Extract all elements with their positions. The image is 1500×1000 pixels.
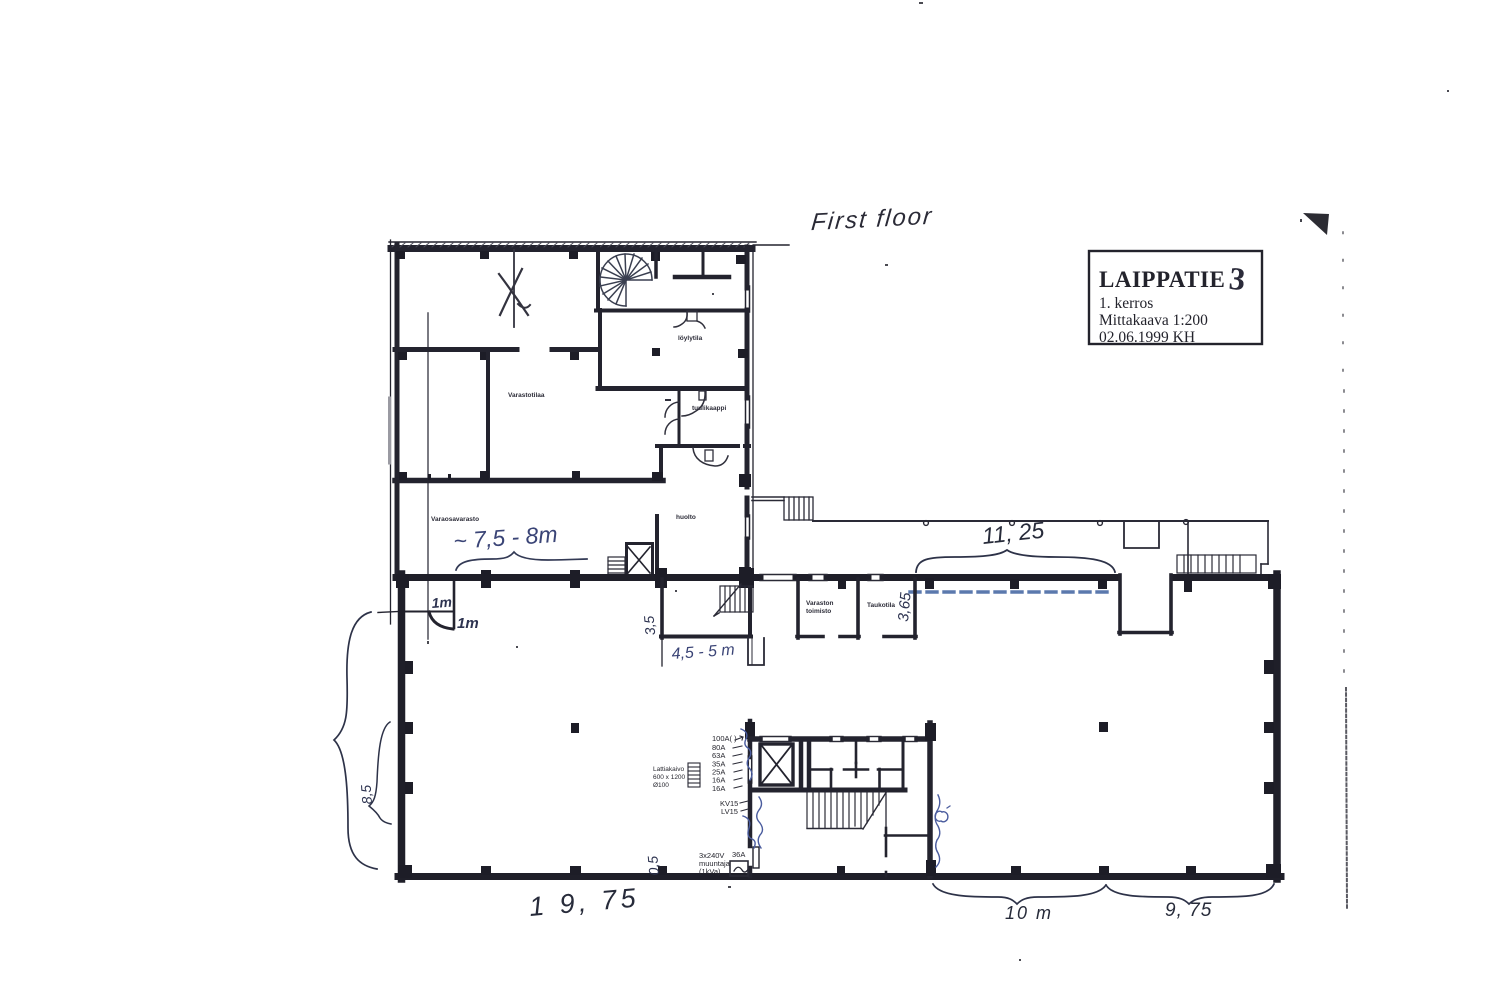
svg-text:LAIPPATIE: LAIPPATIE: [1099, 267, 1225, 292]
svg-text:1. kerros: 1. kerros: [1099, 295, 1153, 312]
svg-text:100A( ): 100A( ): [712, 734, 737, 743]
svg-text:toimisto: toimisto: [806, 608, 831, 615]
svg-text:LV15: LV15: [721, 807, 738, 816]
svg-text:4,5 - 5 m: 4,5 - 5 m: [671, 642, 735, 663]
svg-text:36A: 36A: [732, 850, 745, 859]
svg-text:1m: 1m: [457, 615, 479, 632]
svg-text:1m: 1m: [431, 594, 452, 611]
svg-text:9, 75: 9, 75: [1165, 900, 1212, 921]
svg-text:0,5: 0,5: [644, 855, 662, 876]
svg-text:3,65: 3,65: [895, 591, 915, 622]
svg-text:löylytila: löylytila: [678, 335, 703, 342]
svg-text:3,5: 3,5: [641, 615, 659, 636]
svg-text:First floor: First floor: [810, 203, 934, 236]
svg-text:Mittakaava 1:200: Mittakaava 1:200: [1099, 312, 1208, 329]
svg-text:(1kVa): (1kVa): [699, 867, 721, 876]
svg-text:Varastotilaa: Varastotilaa: [508, 392, 545, 399]
svg-text:Varaosavarasto: Varaosavarasto: [431, 516, 479, 523]
svg-text:Taukotila: Taukotila: [867, 602, 895, 609]
svg-text:600 x 1200: 600 x 1200: [653, 774, 686, 781]
svg-text:02.06.1999 KH: 02.06.1999 KH: [1099, 329, 1195, 346]
svg-text:Ø100: Ø100: [653, 782, 669, 789]
svg-text:Lattiakaivo: Lattiakaivo: [653, 766, 684, 773]
svg-text:huolto: huolto: [676, 514, 696, 521]
svg-text:11, 25: 11, 25: [981, 517, 1046, 549]
svg-text:Varaston: Varaston: [806, 600, 833, 607]
svg-text:1 9, 75: 1 9, 75: [528, 882, 641, 922]
svg-text:10 m: 10 m: [1005, 903, 1053, 923]
svg-text:16A: 16A: [712, 784, 725, 793]
svg-text:~ 7,5 - 8m: ~ 7,5 - 8m: [453, 521, 559, 554]
svg-text:8,5: 8,5: [358, 784, 375, 805]
